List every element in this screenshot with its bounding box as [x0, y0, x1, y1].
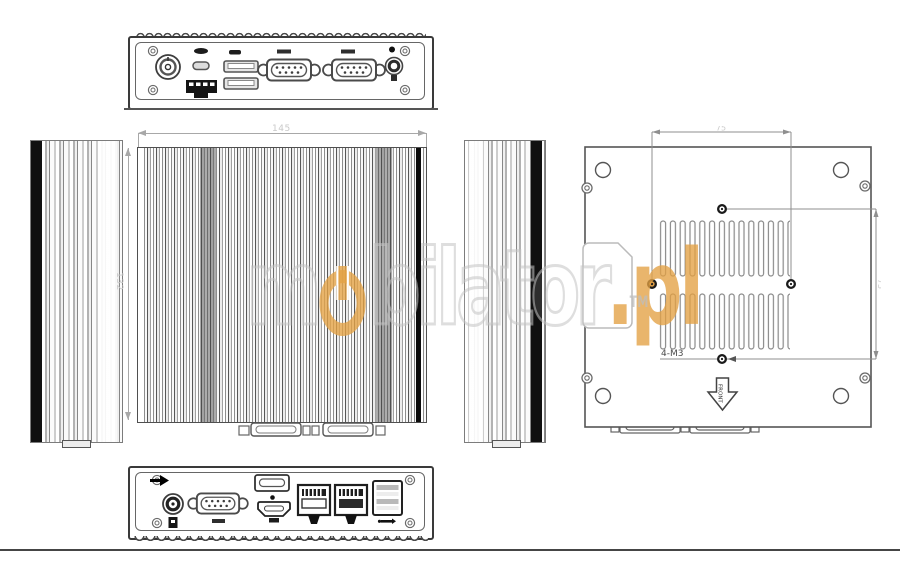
corner-screw	[405, 518, 414, 527]
height-dimension-label: 132	[114, 272, 124, 291]
rear-panel-ports	[128, 460, 434, 554]
hdmi-port	[258, 502, 290, 523]
left-side-view	[30, 140, 123, 443]
bottom-connector-outlines	[237, 420, 387, 440]
corner-screw	[860, 373, 870, 383]
lan-port-2	[335, 485, 367, 524]
top-heatsink-view	[137, 147, 427, 423]
front-arrow-label: FRONT	[717, 384, 723, 403]
plate-top-dim-label: 75	[716, 126, 726, 133]
lan-port-1	[298, 485, 330, 524]
com-label-mark	[212, 519, 225, 523]
corner-screw	[582, 373, 592, 383]
corner-screw	[148, 85, 157, 94]
corner-screw	[400, 46, 409, 55]
right-side-foot	[492, 440, 521, 448]
usb-stack	[373, 481, 402, 515]
dim-tick	[138, 133, 139, 147]
corner-screw	[152, 518, 161, 527]
phoenix-terminal	[186, 80, 217, 98]
led-hole	[270, 495, 275, 500]
mic-hole	[194, 48, 208, 54]
usb-a-port-2	[224, 78, 258, 89]
left-side-foot	[62, 440, 91, 448]
usb-a-port-1	[224, 61, 258, 72]
mini-pc-technical-drawing: 145 132	[0, 0, 900, 575]
page-bottom-rule	[0, 549, 900, 551]
vent-slots-row2	[658, 293, 790, 350]
height-dimension-line	[128, 148, 129, 420]
front-panel-ports	[128, 28, 434, 116]
plate-side-dim-label: 75	[876, 279, 881, 289]
bottom-mounting-view: 75 75 4-M3 FRONT	[581, 126, 881, 438]
usb-icon	[378, 519, 396, 525]
dim-tick	[426, 133, 427, 147]
corner-screw	[860, 181, 870, 191]
access-cover	[583, 243, 632, 328]
m3-holes-label: 4-M3	[661, 349, 683, 359]
antenna-hole	[389, 47, 395, 53]
corner-screw	[400, 85, 409, 94]
audio-jack	[386, 58, 403, 82]
right-side-view	[464, 140, 546, 443]
com2-label-mark	[341, 50, 355, 54]
corner-screw	[148, 46, 157, 55]
width-dimension-label: 145	[272, 124, 291, 134]
vent-slots-row1	[658, 220, 790, 277]
corner-screw	[405, 475, 414, 484]
displayport	[255, 475, 289, 491]
usb-label-icon	[229, 50, 241, 55]
db9-com-port-1	[258, 60, 320, 81]
dc-power-jack	[163, 494, 183, 528]
com1-label-mark	[277, 50, 291, 54]
power-button-icon	[156, 55, 180, 79]
corner-screw	[582, 183, 592, 193]
db9-com-port	[188, 493, 248, 513]
front-panel-view	[128, 28, 434, 116]
rear-panel-view	[128, 460, 434, 554]
db9-com-port-2	[323, 60, 385, 81]
usb-c-port	[193, 62, 209, 70]
